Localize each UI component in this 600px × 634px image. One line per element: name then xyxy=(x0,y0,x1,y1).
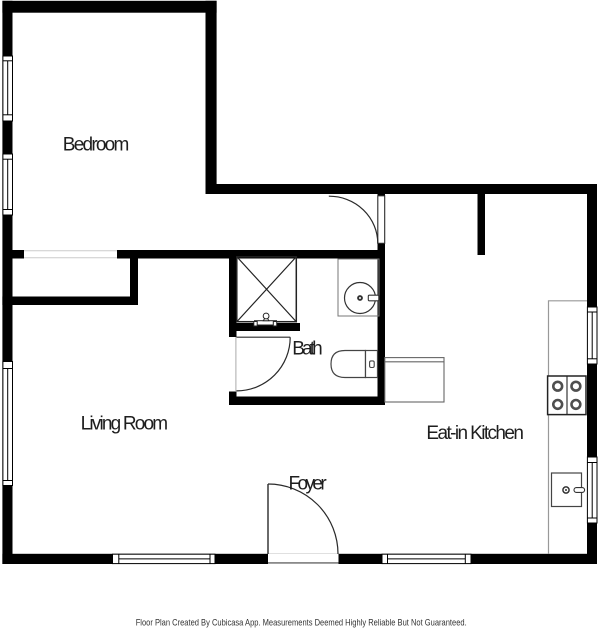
svg-text:Bedroom: Bedroom xyxy=(63,135,130,156)
svg-text:Eat-in Kitchen: Eat-in Kitchen xyxy=(426,423,524,444)
svg-text:Living Room: Living Room xyxy=(81,413,169,434)
svg-text:Floor Plan Created By Cubicasa: Floor Plan Created By Cubicasa App. Meas… xyxy=(136,618,467,628)
svg-text:Bath: Bath xyxy=(292,338,323,359)
svg-text:Foyer: Foyer xyxy=(289,474,328,495)
